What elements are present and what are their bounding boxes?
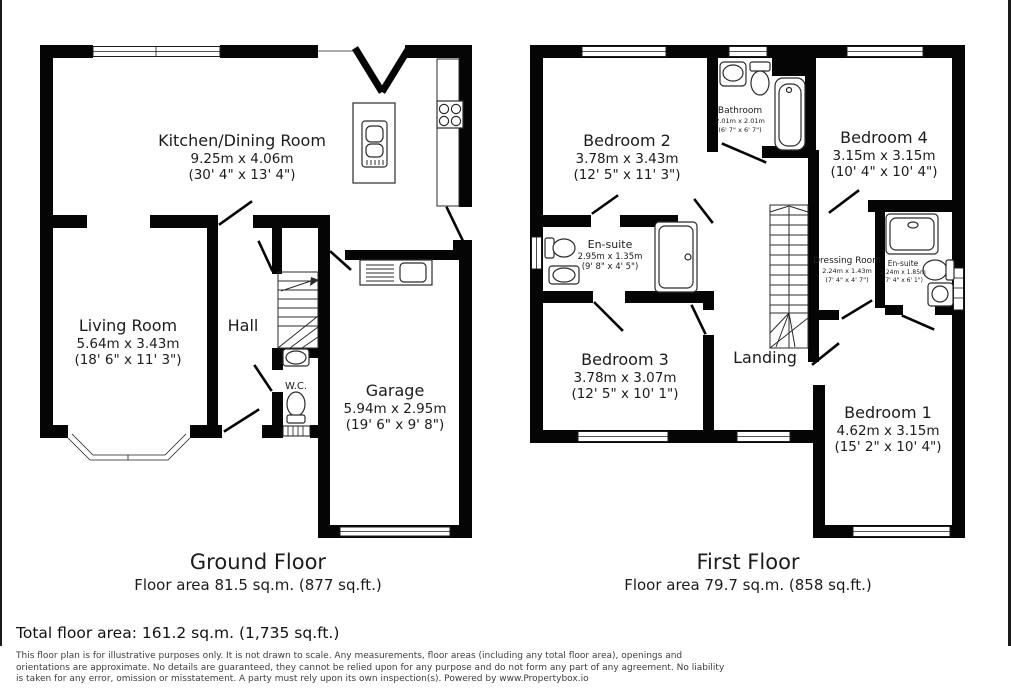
living-room-label: Living Room [79,316,177,335]
ensuite2-size-ft: (9' 8" x 4' 5") [582,262,639,272]
sink-icon [932,286,948,302]
garage-size-ft: (19' 6" x 9' 8") [346,417,444,433]
disclaimer-text: This floor plan is for illustrative purp… [16,651,732,686]
ground-floor-title: Ground Floor [190,550,327,574]
bedroom1-size-m: 4.62m x 3.15m [837,423,940,439]
bathroom-label: Bathroom [718,106,762,116]
dressing-room-size-m: 2.24m x 1.43m [822,267,872,275]
bay-window [68,434,190,460]
bedroom1-label: Bedroom 1 [844,403,932,422]
first-floor-plan: Bedroom 2 3.78m x 3.43m (12' 5" x 11' 3"… [530,45,965,538]
bedroom4-label: Bedroom 4 [840,128,928,147]
bedroom2-size-ft: (12' 5" x 11' 3") [573,167,680,183]
bedroom3-size-m: 3.78m x 3.07m [574,370,677,386]
ensuite1-size-m: 2.24m x 1.85m [880,269,926,276]
hall-label: Hall [228,316,259,335]
landing-label: Landing [733,348,797,367]
bedroom2-label: Bedroom 2 [583,131,671,150]
toilet-icon [287,392,305,416]
kitchen-label: Kitchen/Dining Room [158,131,326,150]
floor-plan-canvas: Kitchen/Dining Room 9.25m x 4.06m (30' 4… [0,0,1011,693]
wc-label: W.C. [285,381,307,392]
ensuite1-label: En-suite [888,259,919,268]
first-floor-area: Floor area 79.7 sq.m. (858 sq.ft.) [624,576,872,594]
ensuite2-label: En-suite [588,238,633,251]
garage-label: Garage [366,381,425,400]
bathroom-size-ft: (6' 7" x 6' 7") [718,126,761,134]
staircase-ground [278,272,319,348]
toilet-icon [923,260,947,280]
garage-size-m: 5.94m x 2.95m [344,401,447,417]
ground-floor-area: Floor area 81.5 sq.m. (877 sq.ft.) [134,576,382,594]
floorplan-page: Kitchen/Dining Room 9.25m x 4.06m (30' 4… [0,0,1011,693]
ensuite1-size-ft: (7' 4" x 6' 1") [883,277,923,284]
bedroom2-size-m: 3.78m x 3.43m [576,151,679,167]
ground-floor-walls [40,45,472,538]
bedroom3-size-ft: (12' 5" x 10' 1") [571,386,678,402]
toilet-icon [553,239,575,257]
bedroom3-label: Bedroom 3 [581,350,669,369]
staircase-first [770,205,808,348]
kitchen-size-ft: (30' 4" x 13' 4") [188,167,295,183]
living-room-size-ft: (18' 6" x 11' 3") [74,352,181,368]
toilet-icon [751,71,769,95]
ground-floor-windows [93,47,450,537]
total-floor-area: Total floor area: 161.2 sq.m. (1,735 sq.… [16,624,339,642]
utility-sink-icon [360,260,432,285]
kitchen-island [353,103,395,183]
bedroom1-size-ft: (15' 2" x 10' 4") [834,439,941,455]
kitchen-size-m: 9.25m x 4.06m [191,151,294,167]
bathroom-size-m: 2.01m x 2.01m [715,117,765,125]
dressing-room-size-ft: (7' 4" x 4' 7") [825,276,868,284]
bedroom4-size-ft: (10' 4" x 10' 4") [830,164,937,180]
hob-icon [437,101,463,128]
dressing-room-label: Dressing Room [813,256,881,266]
living-room-size-m: 5.64m x 3.43m [77,336,180,352]
sink-icon [553,268,575,282]
ensuite2-size-m: 2.95m x 1.35m [578,252,643,262]
floor-titles: Ground Floor Floor area 81.5 sq.m. (877 … [134,550,872,594]
first-floor-title: First Floor [696,550,799,574]
bedroom4-size-m: 3.15m x 3.15m [833,148,936,164]
ground-floor-plan: Kitchen/Dining Room 9.25m x 4.06m (30' 4… [40,45,472,538]
kitchen-counter [437,59,459,206]
